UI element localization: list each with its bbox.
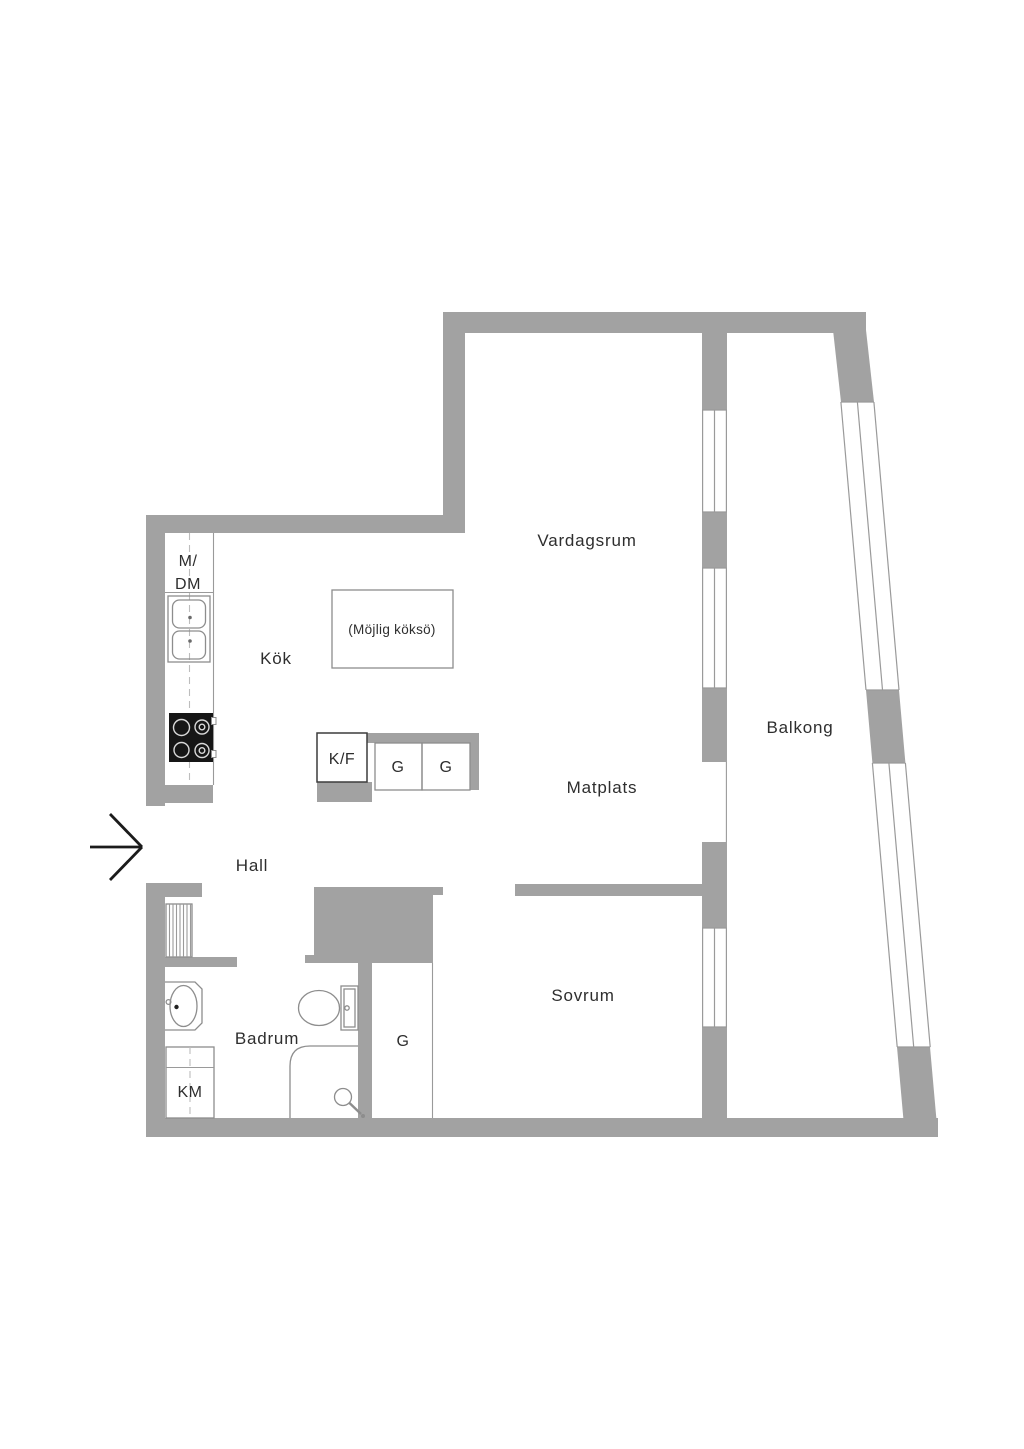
wall-balcony-left-seg5 [702, 1027, 727, 1118]
wall-kf-base [317, 782, 372, 802]
wall-kitchen-top [146, 515, 465, 533]
floor-plan-page: Vardagsrum Balkong Kök Matplats Hall Bad… [0, 0, 1024, 1449]
label-g2: G [440, 759, 453, 776]
wall-wardrobe-frame [367, 733, 479, 790]
window-vardagsrum-1-icon [702, 410, 727, 512]
label-badrum: Badrum [235, 1029, 299, 1048]
wall-entry-stub [165, 883, 202, 897]
label-vardagsrum: Vardagsrum [537, 531, 636, 550]
window-sovrum-icon [702, 928, 727, 1027]
wall-balcony-left-seg2 [702, 512, 727, 568]
label-hall: Hall [236, 856, 269, 875]
wall-left-upper [146, 533, 165, 806]
floor-plan: Vardagsrum Balkong Kök Matplats Hall Bad… [0, 0, 1024, 1449]
wall-sovrum-top [515, 884, 702, 896]
wall-badrum-right [358, 963, 372, 1118]
label-sovrum: Sovrum [551, 986, 614, 1005]
label-m-dm-2: DM [175, 576, 201, 593]
label-g-closet: G [397, 1033, 410, 1050]
wall-counter-stub [165, 785, 213, 803]
wall-top [443, 312, 866, 333]
label-balkong: Balkong [766, 718, 833, 737]
window-vardagsrum-2-icon [702, 568, 727, 688]
radiator-icon [166, 904, 192, 957]
wall-balcony-left-seg4 [702, 842, 727, 928]
wall-central-foot [305, 955, 314, 963]
label-m-dm-1: M/ [179, 553, 198, 570]
kitchen-counter [165, 533, 216, 785]
stove-icon [169, 713, 216, 762]
wall-balcony-left-seg1 [702, 333, 727, 410]
wall-upper-left-vertical [443, 312, 465, 533]
wall-slant-top [833, 330, 874, 402]
entrance-arrow-icon [90, 814, 142, 880]
labels: Vardagsrum Balkong Kök Matplats Hall Bad… [175, 531, 833, 1101]
wall-left-lower [146, 883, 165, 1137]
label-matplats: Matplats [567, 778, 638, 797]
wall-balcony-left-seg3 [702, 688, 727, 762]
wall-bottom [146, 1118, 938, 1137]
shower-icon [290, 1046, 365, 1118]
toilet-icon [299, 986, 359, 1030]
window-balcony-upper-icon [841, 402, 899, 690]
washing-machine-icon [166, 1047, 214, 1118]
label-kok: Kök [260, 649, 292, 668]
bathroom-sink-icon [165, 982, 202, 1030]
wall-badrum-stub [165, 957, 237, 967]
label-g1: G [392, 759, 405, 776]
wall-slant-mid [866, 690, 905, 763]
label-kf: K/F [329, 751, 355, 768]
label-km: KM [178, 1084, 203, 1101]
window-balcony-lower-icon [872, 763, 930, 1047]
wall-central-block [314, 887, 443, 963]
label-island-note: (Möjlig köksö) [348, 622, 435, 637]
